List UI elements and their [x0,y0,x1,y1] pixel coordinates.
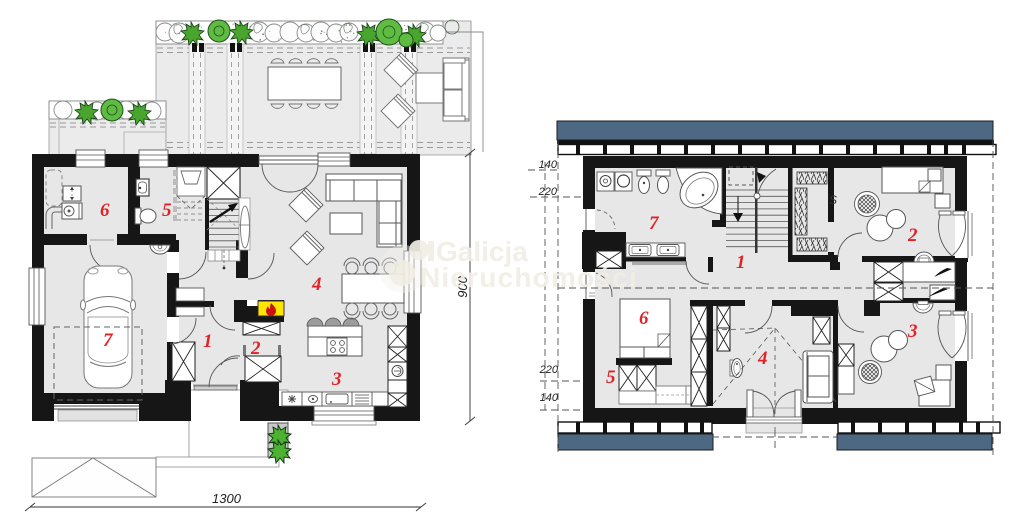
svg-text:1300: 1300 [212,491,242,506]
svg-text:S: S [829,193,837,207]
svg-text:4: 4 [757,348,768,369]
svg-text:1: 1 [736,252,746,273]
svg-text:4: 4 [311,274,322,295]
svg-text:140: 140 [540,392,559,404]
svg-text:7: 7 [103,330,114,351]
svg-text:Nieruchomości: Nieruchomości [420,262,638,293]
svg-text:3: 3 [907,321,918,342]
svg-text:2: 2 [907,225,918,246]
svg-text:1: 1 [203,331,213,352]
svg-text:5: 5 [162,200,172,221]
svg-text:7: 7 [649,213,660,234]
svg-text:6: 6 [639,308,649,329]
svg-text:2: 2 [250,338,261,359]
svg-text:6: 6 [100,200,110,221]
svg-text:140: 140 [539,159,558,171]
svg-text:220: 220 [538,186,558,198]
svg-text:3: 3 [331,369,342,390]
svg-text:5: 5 [606,367,616,388]
svg-text:220: 220 [539,364,559,376]
